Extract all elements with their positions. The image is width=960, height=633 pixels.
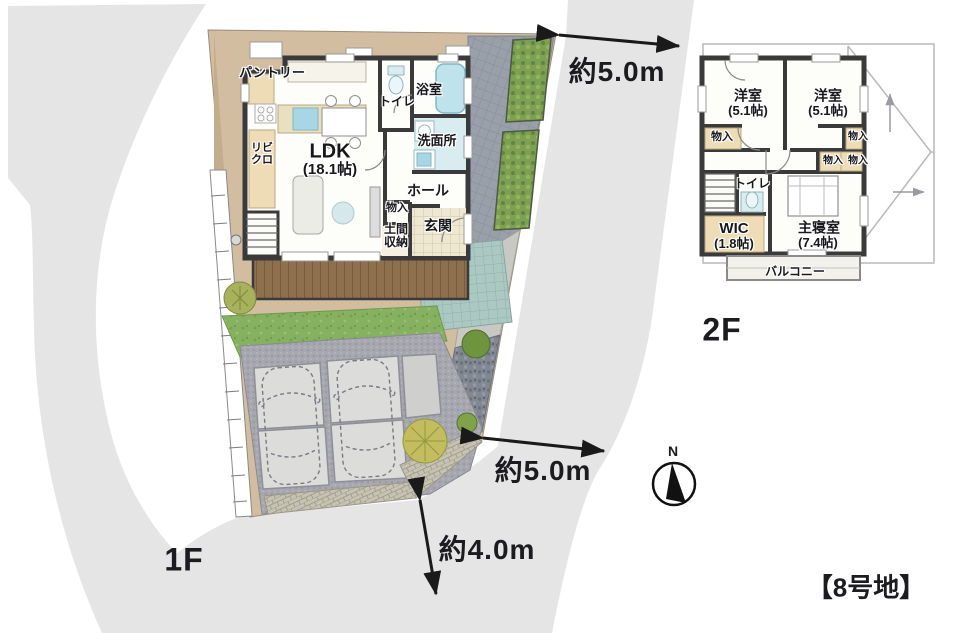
label-1f-washroom: 洗面所: [417, 134, 456, 148]
label-1f-hall: ホール: [407, 184, 449, 199]
compass-icon: [653, 463, 695, 505]
label-1f-ldk: LDK: [309, 141, 350, 162]
label-1f-storage: 物入: [386, 203, 408, 215]
label-1f-pantry: パントリー: [239, 66, 305, 80]
label-2f-wic: WIC: [719, 221, 748, 237]
dimension-label-side: 約5.0m: [495, 449, 592, 489]
label-2f-storage-mid-left: 物入: [823, 157, 843, 168]
label-1f-ldk-size: (18.1帖): [303, 162, 357, 178]
compass-north-label: N: [668, 443, 678, 459]
label-2f-bedroom1-size: (5.1帖): [728, 104, 768, 118]
label-1f-toilet: トイレ: [379, 96, 415, 109]
label-2f-master-size: (7.4帖): [798, 236, 838, 250]
floor2-title: 2F: [702, 312, 741, 349]
wood-deck: [253, 256, 468, 299]
label-2f-wic-size: (1.8帖): [714, 237, 754, 251]
label-2f-master: 主寝室: [798, 221, 840, 236]
label-1f-doma: 土間収納: [384, 223, 408, 249]
label-2f-bedroom2-size: (5.1帖): [808, 104, 848, 118]
dimension-label-top: 約5.0m: [569, 50, 666, 90]
label-2f-balcony: バルコニー: [765, 266, 825, 279]
label-2f-storage-right: 物入: [848, 133, 868, 144]
label-2f-toilet: トイレ: [734, 178, 770, 191]
label-2f-bedroom1: 洋室: [734, 89, 762, 104]
dimension-label-bottom: 約4.0m: [439, 528, 536, 568]
lot-number-title: 【8号地】: [807, 568, 925, 605]
label-1f-bath: 浴室: [416, 83, 442, 97]
label-2f-bedroom2: 洋室: [814, 89, 842, 104]
floor-plan-page: パントリー LDK (18.1帖) リビクロ トイレ 浴室 洗面所 ホール 物入…: [0, 0, 960, 633]
label-1f-entrance: 玄関: [424, 219, 452, 234]
label-1f-living-closet: リビクロ: [251, 143, 273, 167]
label-2f-storage-left: 物入: [711, 132, 733, 144]
label-2f-storage-mid-right: 物入: [848, 157, 868, 168]
floor1-title: 1F: [164, 542, 203, 579]
